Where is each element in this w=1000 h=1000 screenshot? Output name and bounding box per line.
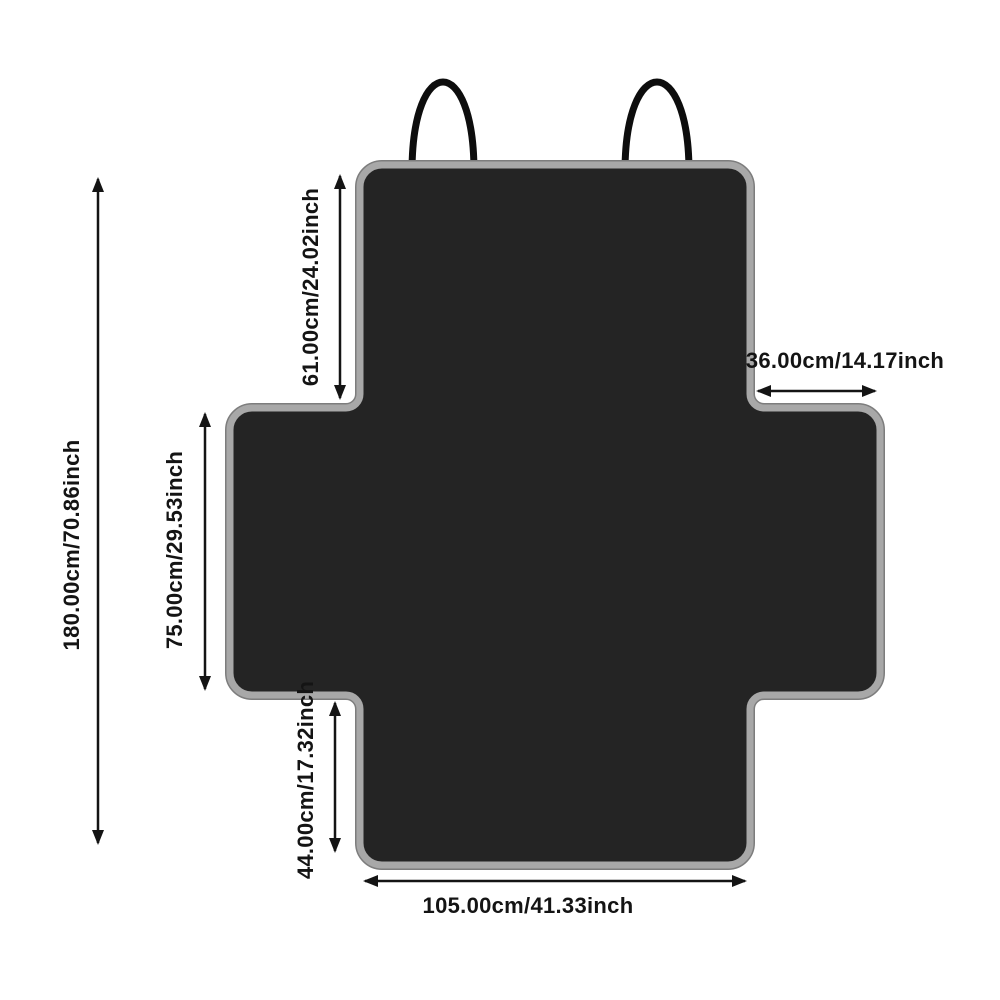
left-strap-icon [412,82,474,172]
right-strap-icon [625,82,689,172]
dimension-label-bottom-width: 105.00cm/41.33inch [423,893,634,919]
dimension-label-side-flap-width: 36.00cm/14.17inch [746,348,944,374]
seat-cover-shape [230,165,880,865]
dimension-label-total-height: 180.00cm/70.86inch [59,440,85,651]
seat-cover-dimension-diagram: 180.00cm/70.86inch 61.00cm/24.02inch 75.… [0,0,1000,1000]
seat-cover-illustration [0,0,1000,1000]
dimension-label-top-flap-height: 61.00cm/24.02inch [298,188,324,386]
dimension-label-bottom-flap-height: 44.00cm/17.32inch [293,681,319,879]
dimension-label-middle-height: 75.00cm/29.53inch [162,451,188,649]
